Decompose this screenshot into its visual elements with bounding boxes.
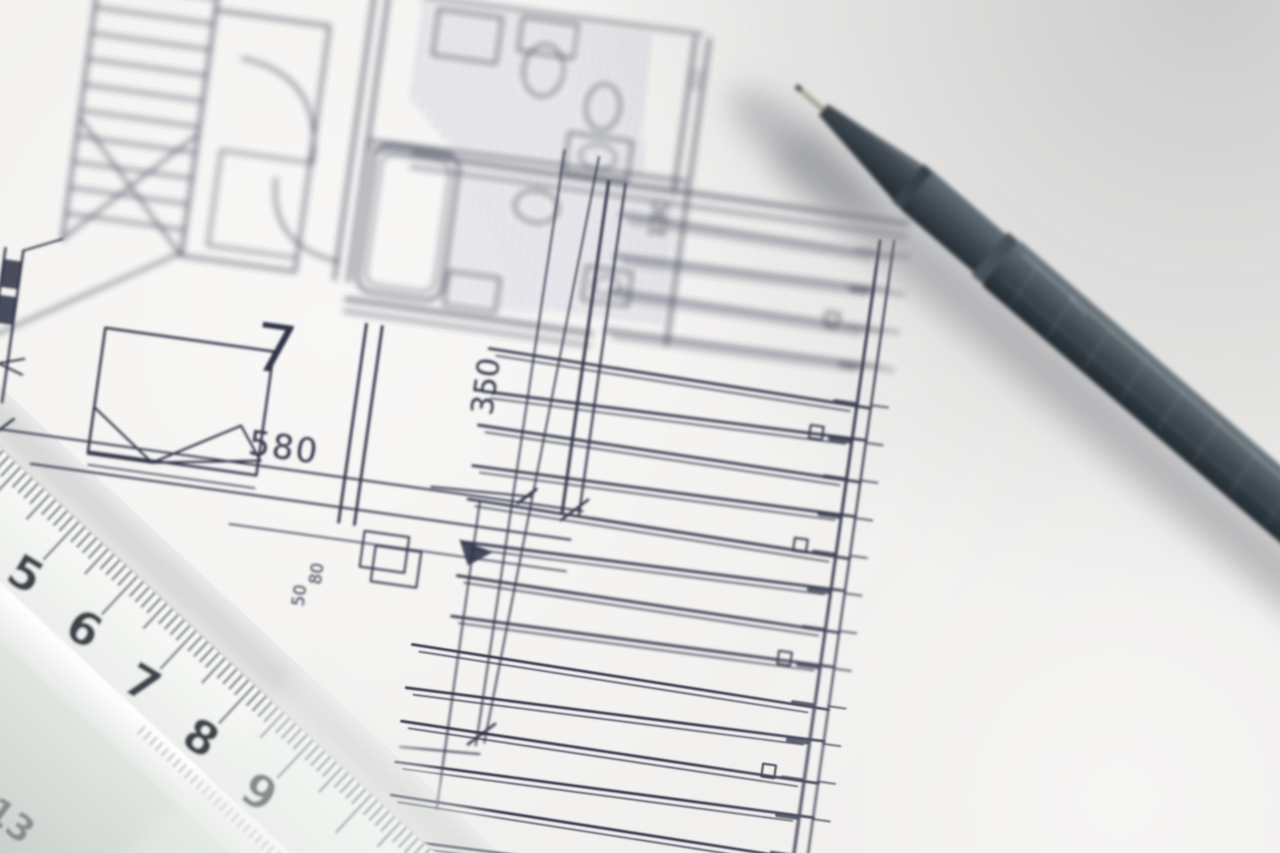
photo-architectural-plan: 130 60 (0, 0, 1280, 853)
